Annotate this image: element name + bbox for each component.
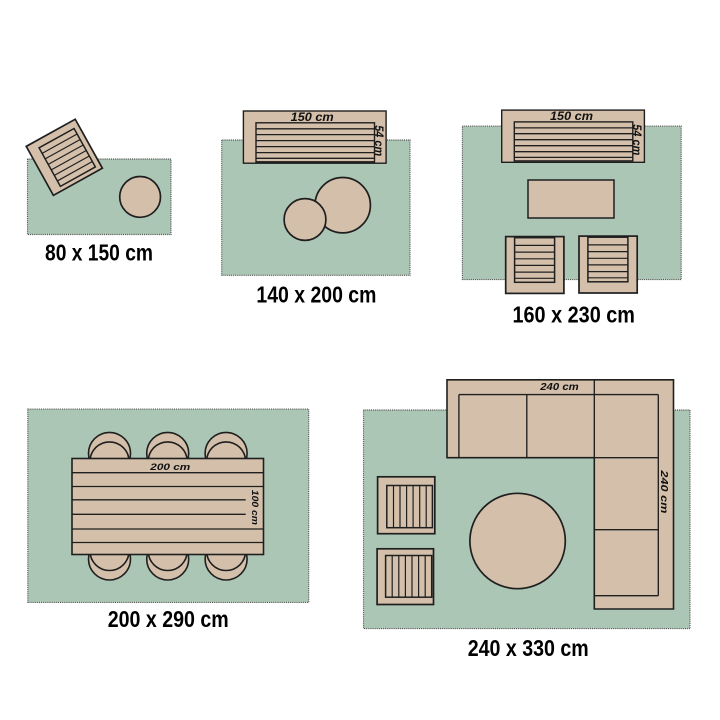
svg-text:150 cm: 150 cm <box>291 112 334 124</box>
svg-text:200 x 290 cm: 200 x 290 cm <box>108 606 229 632</box>
svg-text:150 cm: 150 cm <box>550 111 593 123</box>
svg-text:80 x 150 cm: 80 x 150 cm <box>45 239 153 265</box>
svg-text:100 cm: 100 cm <box>249 490 260 525</box>
svg-text:200 cm: 200 cm <box>149 462 191 473</box>
svg-text:54 cm: 54 cm <box>372 125 384 156</box>
svg-text:240 cm: 240 cm <box>539 381 579 393</box>
svg-text:160 x 230 cm: 160 x 230 cm <box>512 301 635 327</box>
svg-text:240 x 330 cm: 240 x 330 cm <box>468 635 589 661</box>
svg-text:54 cm: 54 cm <box>630 124 642 155</box>
svg-text:240 cm: 240 cm <box>658 469 670 513</box>
svg-text:140 x 200 cm: 140 x 200 cm <box>256 281 376 307</box>
